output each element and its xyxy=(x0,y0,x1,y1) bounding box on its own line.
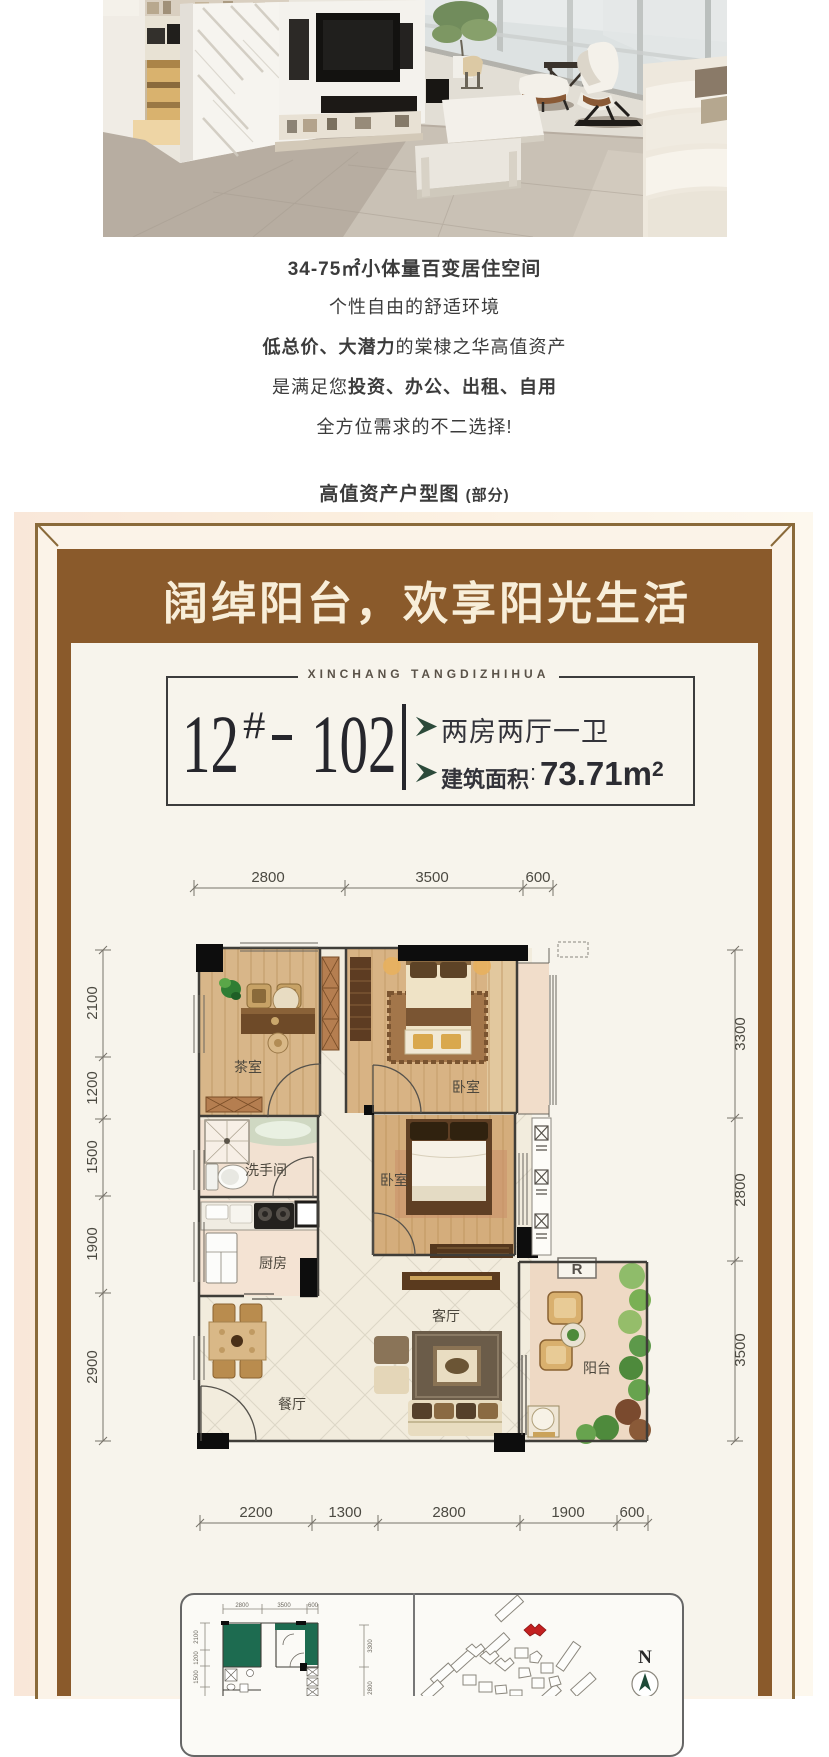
svg-text:3300: 3300 xyxy=(732,1017,749,1050)
svg-text:餐厅: 餐厅 xyxy=(278,1396,306,1412)
svg-text:1500: 1500 xyxy=(84,1140,101,1173)
svg-text:2800: 2800 xyxy=(251,869,284,886)
svg-text:1300: 1300 xyxy=(328,1504,361,1521)
svg-text:1200: 1200 xyxy=(84,1071,101,1104)
svg-text:卧室: 卧室 xyxy=(452,1079,480,1095)
svg-text:R: R xyxy=(572,1261,583,1278)
svg-text:2800: 2800 xyxy=(432,1504,465,1521)
svg-text:2100: 2100 xyxy=(194,1630,200,1644)
svg-text:阳台: 阳台 xyxy=(583,1360,611,1376)
svg-text:茶室: 茶室 xyxy=(234,1059,262,1075)
svg-text:N: N xyxy=(638,1647,652,1668)
svg-text:1200: 1200 xyxy=(194,1651,200,1665)
svg-text:2800: 2800 xyxy=(732,1173,749,1206)
svg-text:3300: 3300 xyxy=(368,1639,374,1653)
svg-text:600: 600 xyxy=(308,1603,319,1609)
svg-text:2100: 2100 xyxy=(84,986,101,1019)
svg-text:1500: 1500 xyxy=(194,1670,200,1684)
svg-text:卧室: 卧室 xyxy=(380,1172,408,1188)
svg-text:600: 600 xyxy=(525,869,550,886)
svg-text:1900: 1900 xyxy=(551,1504,584,1521)
svg-text:1900: 1900 xyxy=(84,1227,101,1260)
svg-text:3500: 3500 xyxy=(732,1333,749,1366)
svg-text:600: 600 xyxy=(619,1504,644,1521)
svg-text:洗手间: 洗手间 xyxy=(245,1162,287,1178)
svg-text:2200: 2200 xyxy=(239,1504,272,1521)
svg-text:客厅: 客厅 xyxy=(432,1308,460,1324)
svg-text:2800: 2800 xyxy=(235,1603,249,1609)
svg-text:3500: 3500 xyxy=(415,869,448,886)
svg-text:3500: 3500 xyxy=(277,1603,291,1609)
svg-text:厨房: 厨房 xyxy=(259,1255,287,1271)
svg-text:2800: 2800 xyxy=(368,1681,374,1695)
svg-text:2900: 2900 xyxy=(84,1350,101,1383)
